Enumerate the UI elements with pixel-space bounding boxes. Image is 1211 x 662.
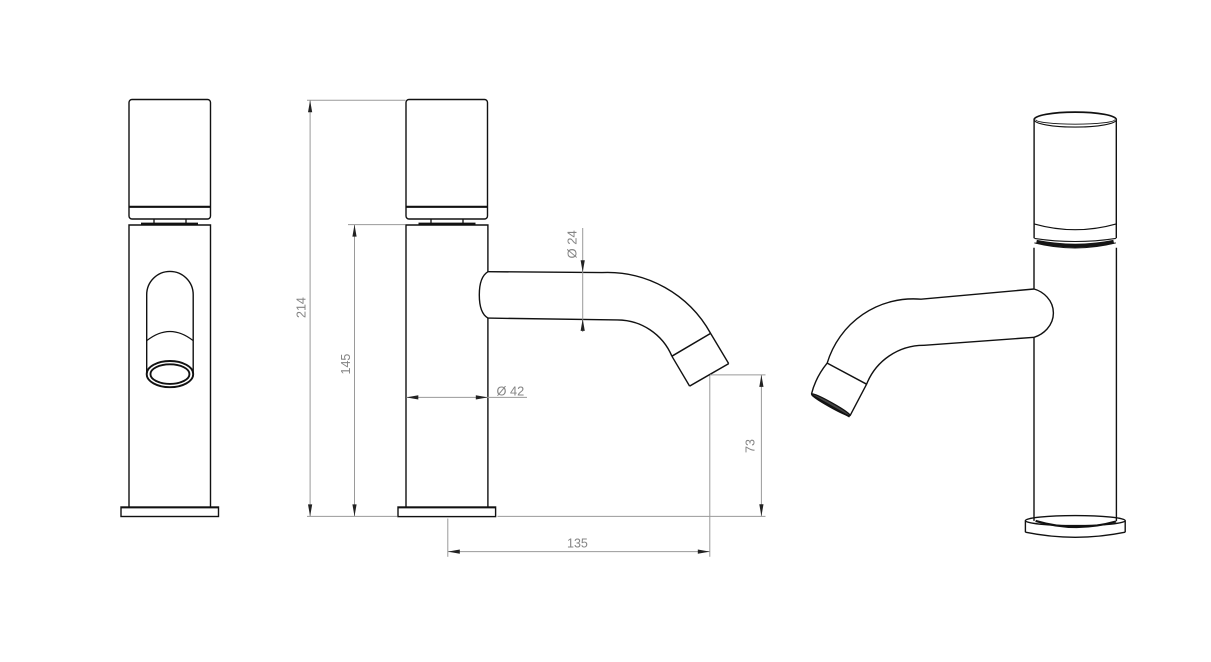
svg-text:135: 135 [567, 537, 588, 551]
svg-text:Ø 42: Ø 42 [497, 383, 525, 398]
svg-text:145: 145 [339, 354, 353, 375]
svg-text:214: 214 [295, 297, 309, 318]
svg-text:Ø 24: Ø 24 [565, 230, 580, 258]
svg-text:73: 73 [744, 439, 758, 453]
